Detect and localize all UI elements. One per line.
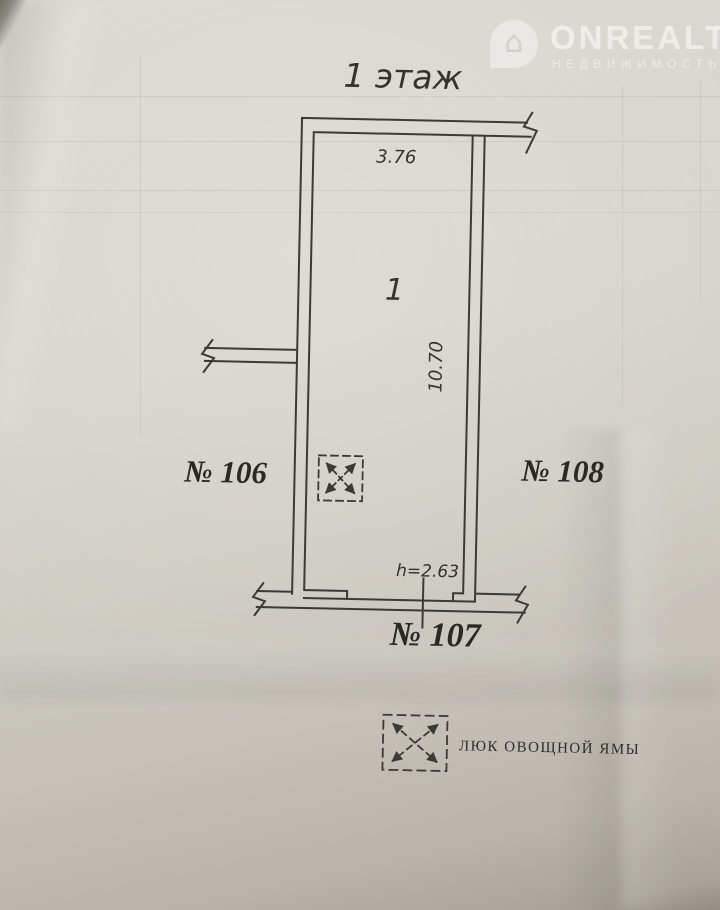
house-glyph: ⌂ <box>504 28 523 58</box>
vegetable-pit-hatch-symbol <box>318 455 363 501</box>
watermark-brand: ONREALT <box>550 20 720 56</box>
adjacent-unit-bottom-label: № 107 <box>389 616 483 655</box>
floor-title: 1 этаж <box>343 56 463 97</box>
top-width-dimension: 3.76 <box>376 146 417 168</box>
adjacent-unit-left-label: № 106 <box>183 453 268 490</box>
wall-break-marks <box>197 106 539 623</box>
adjacent-unit-right-label: № 108 <box>520 453 605 490</box>
watermark-text: ONREALT НЕДВИЖИМОСТЬ <box>550 20 720 71</box>
floor-plan-drawing: 1 этаж 3.76 1 10.70 h=2.63 № 106 № 108 №… <box>0 0 720 910</box>
legend-hatch-symbol <box>382 715 447 771</box>
legend-label: люк овощной ямы <box>459 737 641 758</box>
house-pin-icon: ⌂ <box>490 20 538 68</box>
room-number: 1 <box>385 273 405 308</box>
watermark-subtitle: НЕДВИЖИМОСТЬ <box>552 57 720 71</box>
ceiling-height-note: h=2.63 <box>396 561 459 582</box>
onrealt-watermark: ⌂ ONREALT НЕДВИЖИМОСТЬ <box>490 20 720 71</box>
photographed-floor-plan-page: { "watermark": { "brand": "ONREALT", "su… <box>0 0 720 910</box>
garage-walls <box>199 116 535 630</box>
side-length-dimension: 10.70 <box>425 341 447 393</box>
